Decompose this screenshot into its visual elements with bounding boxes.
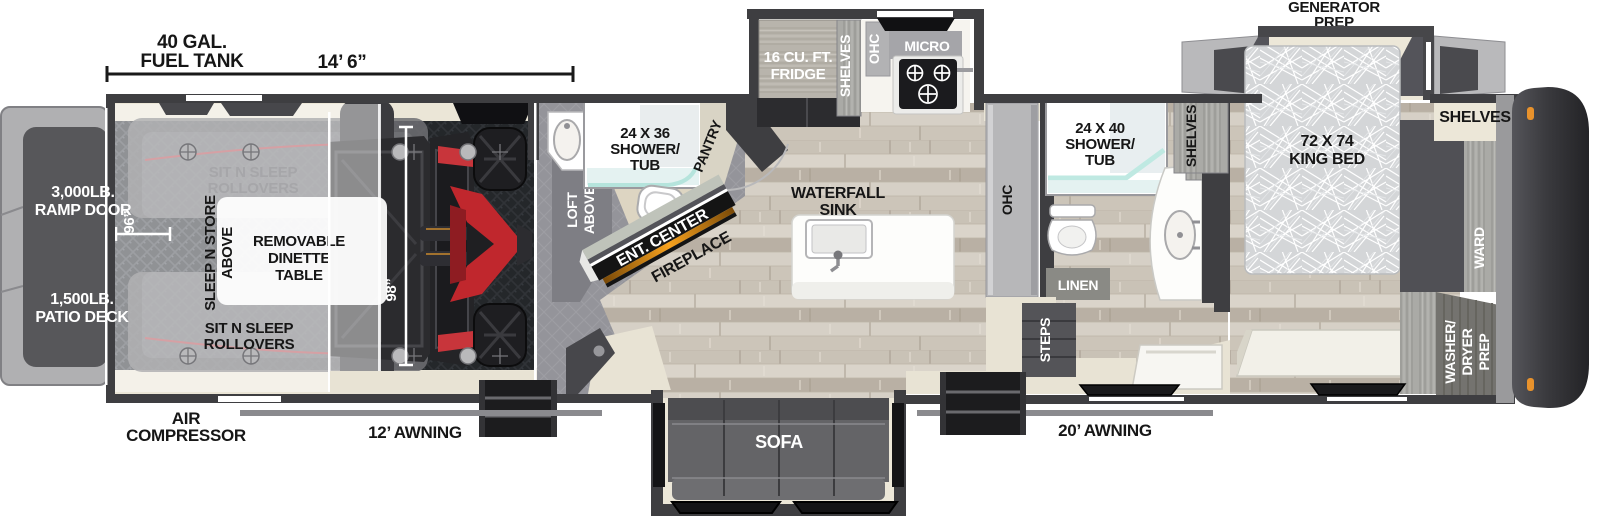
svg-text:ABOVE: ABOVE xyxy=(581,186,597,234)
svg-text:12’ AWNING: 12’ AWNING xyxy=(368,423,462,442)
svg-text:SOFA: SOFA xyxy=(755,432,803,452)
svg-text:24 X 40: 24 X 40 xyxy=(1075,120,1125,137)
svg-text:WARD: WARD xyxy=(1471,227,1487,269)
svg-text:TUB: TUB xyxy=(1085,152,1115,169)
svg-text:WASHER/: WASHER/ xyxy=(1442,320,1458,384)
svg-text:ROLLOVERS: ROLLOVERS xyxy=(204,336,295,353)
svg-text:DINETTE: DINETTE xyxy=(268,250,330,267)
svg-text:SIT N SLEEP: SIT N SLEEP xyxy=(209,164,298,181)
svg-text:COMPRESSOR: COMPRESSOR xyxy=(126,426,246,445)
svg-text:FRIDGE: FRIDGE xyxy=(771,66,826,83)
svg-text:72 X 74: 72 X 74 xyxy=(1300,133,1353,150)
svg-text:OHC: OHC xyxy=(866,34,882,64)
svg-text:98”: 98” xyxy=(383,278,400,301)
svg-text:SLEEP N STORE: SLEEP N STORE xyxy=(202,195,219,311)
svg-text:LINEN: LINEN xyxy=(1058,277,1099,293)
svg-text:SINK: SINK xyxy=(819,202,857,219)
svg-text:FUEL TANK: FUEL TANK xyxy=(140,51,244,72)
svg-text:LOFT: LOFT xyxy=(564,192,580,228)
svg-text:STEPS: STEPS xyxy=(1037,318,1053,362)
svg-text:16 CU. FT.: 16 CU. FT. xyxy=(764,49,833,66)
svg-text:14’ 6”: 14’ 6” xyxy=(318,52,367,73)
svg-text:SHOWER/: SHOWER/ xyxy=(610,141,681,158)
svg-text:WATERFALL: WATERFALL xyxy=(791,185,885,202)
svg-text:SHELVES: SHELVES xyxy=(837,35,853,97)
svg-text:3,000LB.: 3,000LB. xyxy=(51,184,114,201)
svg-text:OHC: OHC xyxy=(999,185,1015,215)
svg-text:PATIO DECK: PATIO DECK xyxy=(35,309,129,326)
svg-text:ROLLOVERS: ROLLOVERS xyxy=(208,180,299,197)
svg-text:SIT N SLEEP: SIT N SLEEP xyxy=(205,320,294,337)
svg-text:SHELVES: SHELVES xyxy=(1183,105,1199,167)
svg-text:TABLE: TABLE xyxy=(275,267,323,284)
svg-text:SHELVES: SHELVES xyxy=(1439,109,1511,126)
svg-text:PREP: PREP xyxy=(1476,334,1492,371)
svg-text:40 GAL.: 40 GAL. xyxy=(157,32,227,53)
svg-text:RAMP DOOR: RAMP DOOR xyxy=(35,202,132,219)
svg-text:SHOWER/: SHOWER/ xyxy=(1065,136,1136,153)
svg-text:KING BED: KING BED xyxy=(1289,151,1365,168)
svg-text:ABOVE: ABOVE xyxy=(219,227,236,279)
svg-text:TUB: TUB xyxy=(630,157,660,174)
svg-text:REMOVABLE: REMOVABLE xyxy=(253,233,345,250)
svg-text:MICRO: MICRO xyxy=(904,38,950,54)
svg-text:1,500LB.: 1,500LB. xyxy=(50,291,113,308)
svg-text:20’ AWNING: 20’ AWNING xyxy=(1058,421,1152,440)
svg-text:DRYER: DRYER xyxy=(1459,328,1475,375)
svg-text:24 X 36: 24 X 36 xyxy=(620,125,670,142)
